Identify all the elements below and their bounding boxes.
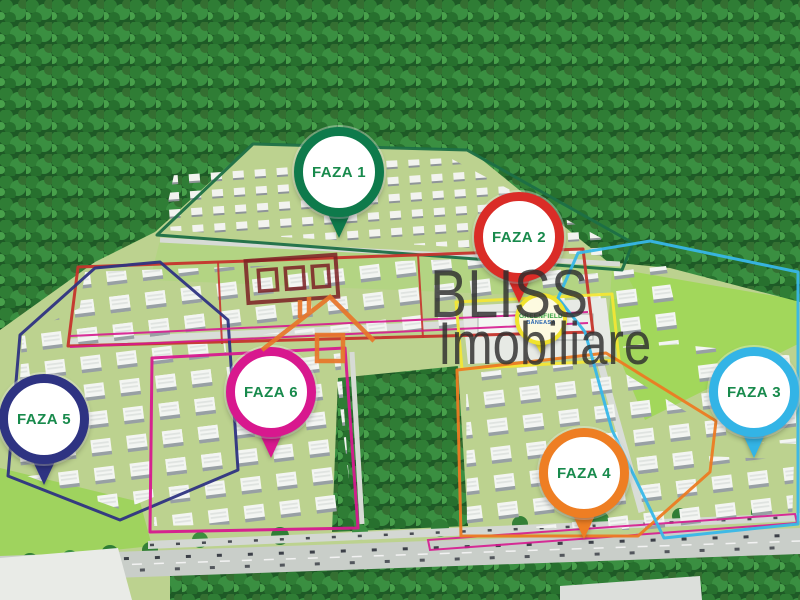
aerial-site-render bbox=[0, 0, 800, 600]
pin-faza-6-label: FAZA 6 bbox=[244, 384, 298, 401]
pin-faza-4-label: FAZA 4 bbox=[557, 465, 611, 482]
pin-faza-2-circle: FAZA 2 bbox=[474, 192, 564, 282]
pin-faza-5[interactable]: FAZA 5 bbox=[0, 374, 89, 485]
pin-faza-1-label: FAZA 1 bbox=[312, 164, 366, 181]
pin-faza-1[interactable]: FAZA 1 bbox=[294, 127, 384, 238]
pin-greenfield-circle: GREENFIELD BĂNEASA bbox=[515, 293, 567, 345]
pin-faza-6[interactable]: FAZA 6 bbox=[226, 347, 316, 458]
pin-faza-3-circle: FAZA 3 bbox=[709, 347, 799, 437]
site-plan-screenshot: { "watermark": { "line1": "BLISS", "line… bbox=[0, 0, 800, 600]
pin-faza-1-circle: FAZA 1 bbox=[294, 127, 384, 217]
pin-faza-2-label: FAZA 2 bbox=[492, 229, 546, 246]
pin-faza-2[interactable]: FAZA 2 bbox=[474, 192, 564, 303]
pin-faza-4[interactable]: FAZA 4 bbox=[539, 428, 629, 539]
pin-greenfield-label: GREENFIELD bbox=[519, 313, 563, 320]
pin-greenfield-sublabel: BĂNEASA bbox=[526, 320, 555, 326]
pin-greenfield[interactable]: GREENFIELD BĂNEASA bbox=[515, 293, 567, 354]
pin-faza-5-label: FAZA 5 bbox=[17, 411, 71, 428]
pin-faza-3[interactable]: FAZA 3 bbox=[709, 347, 799, 458]
pin-faza-4-circle: FAZA 4 bbox=[539, 428, 629, 518]
pin-faza-6-circle: FAZA 6 bbox=[226, 347, 316, 437]
pin-faza-3-label: FAZA 3 bbox=[727, 384, 781, 401]
pin-faza-5-circle: FAZA 5 bbox=[0, 374, 89, 464]
